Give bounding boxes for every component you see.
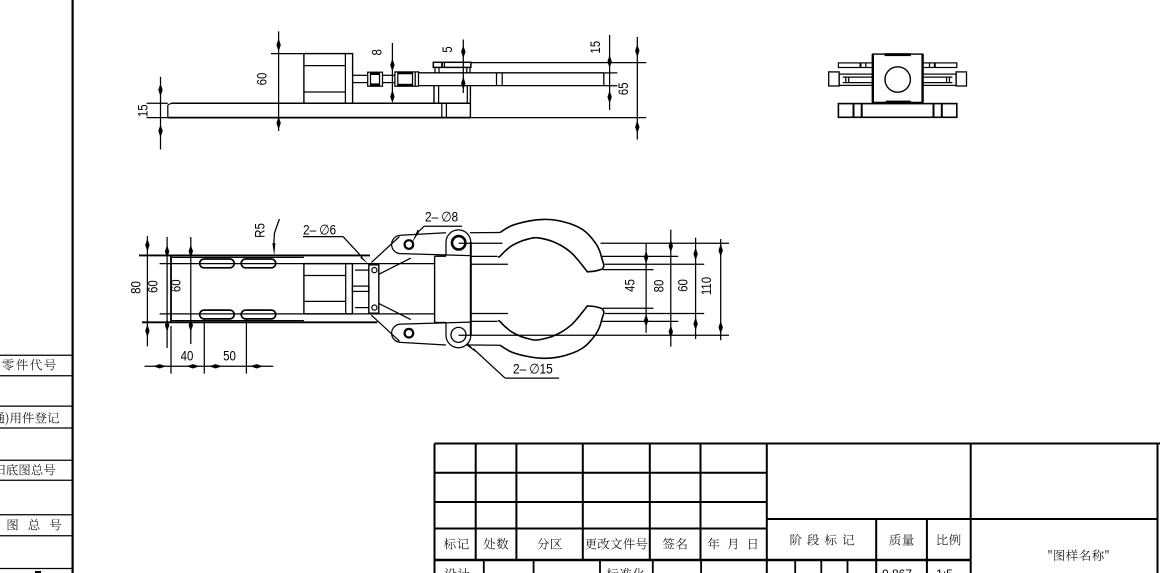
svg-text:2– ∅6: 2– ∅6 [303,222,336,238]
svg-text:15: 15 [134,104,150,117]
svg-text:5: 5 [439,46,455,52]
svg-text:110: 110 [698,277,714,295]
svg-text:15: 15 [587,41,603,54]
svg-text:65: 65 [615,83,631,96]
svg-text:2– ∅8: 2– ∅8 [425,209,458,225]
svg-text:80: 80 [127,281,143,294]
svg-text:60: 60 [253,73,269,86]
svg-text:0.867: 0.867 [882,567,912,573]
svg-text:8: 8 [368,49,384,55]
svg-text:60: 60 [144,280,160,293]
svg-text:R5: R5 [251,223,267,238]
svg-text:60: 60 [167,279,183,292]
svg-text:80: 80 [650,280,666,293]
svg-text:60: 60 [674,279,690,292]
svg-text:2– ∅15: 2– ∅15 [513,361,553,377]
svg-text:45: 45 [621,279,637,292]
svg-text:50: 50 [223,347,236,363]
svg-text:40: 40 [181,347,194,363]
svg-text:1:5: 1:5 [936,567,953,573]
